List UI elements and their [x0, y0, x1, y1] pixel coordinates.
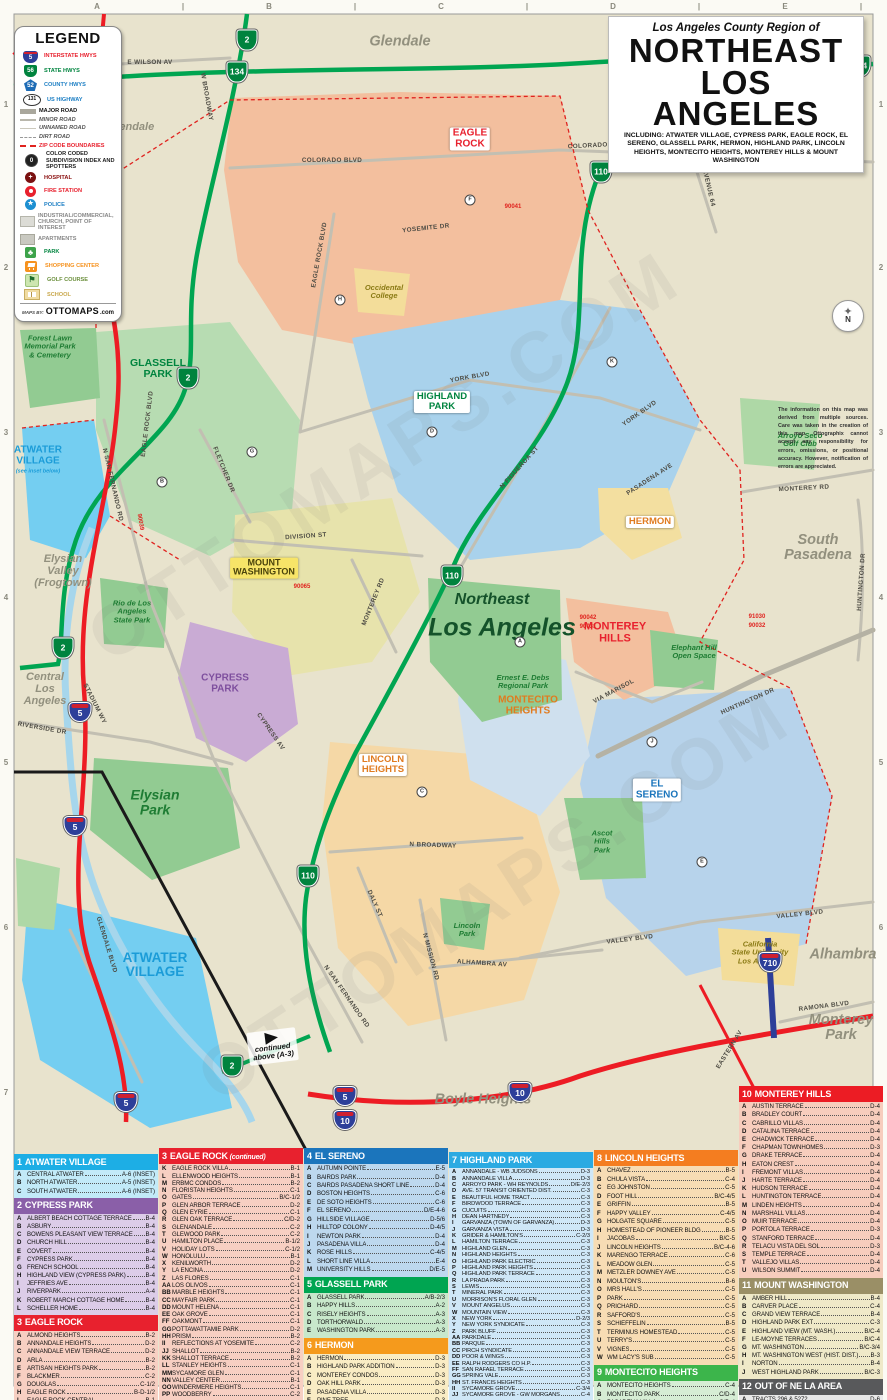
grid-row-label: 3: [4, 429, 8, 437]
legend-item-label: PARK: [44, 249, 59, 255]
campus-occidental: [354, 268, 410, 316]
legend-item-label: FIRE STATION: [44, 188, 82, 194]
legend-item-label: UNNAMED ROAD: [39, 125, 86, 131]
legend-item-label: SCHOOL: [47, 292, 71, 298]
grid-tick: |: [698, 1389, 700, 1397]
brand-name: OTTOMAPS: [46, 307, 99, 316]
grid-row-label: 5: [4, 759, 8, 767]
indus-icon: [20, 216, 35, 227]
spot-icon: 0: [25, 154, 38, 167]
legend-item: ZIP CODE BOUNDARIES: [20, 143, 116, 149]
legend-item: FIRE STATION: [20, 186, 116, 197]
map-poster: OTTOMAPS.COM OTTOMAPS.COM GlendaleGlenda…: [0, 0, 887, 1400]
grid-tick: |: [860, 1389, 862, 1397]
title-block: Los Angeles County Region of NORTHEAST L…: [608, 16, 864, 173]
legend-item: ♣PARK: [20, 247, 116, 258]
grid-row-label: 4: [4, 594, 8, 602]
grid-col-label: C: [438, 1389, 444, 1397]
grid-tick: |: [860, 3, 862, 11]
legend-item-label: US HIGHWAY: [47, 97, 83, 103]
i5-icon: 5: [23, 51, 38, 63]
grid-row-label: 4: [879, 594, 883, 602]
legend-item-label: INTERSTATE HWYS: [44, 53, 97, 59]
title-line2: LOS ANGELES: [613, 67, 859, 130]
legend-item: 52COUNTY HWYS: [20, 79, 116, 91]
legend-item: MAJOR ROAD: [20, 108, 116, 114]
shop-icon: [25, 261, 37, 272]
grid-row-label: 7: [879, 1089, 883, 1097]
title-including: INCLUDING: ATWATER VILLAGE, CYPRESS PARK…: [613, 132, 859, 165]
major-icon: [20, 109, 36, 114]
legend-item-label: COUNTY HWYS: [44, 82, 86, 88]
disclaimer-text: The information on this map was derived …: [778, 406, 868, 471]
c52-icon: 52: [24, 79, 37, 91]
school-icon: [24, 289, 40, 300]
map-canvas: [0, 0, 887, 1400]
grid-row-label: 1: [879, 101, 883, 109]
legend-item: SHOPPING CENTER: [20, 261, 116, 272]
compass-north-label: N: [845, 316, 851, 324]
legend-item: +HOSPITAL: [20, 172, 116, 183]
maps-by-label: MAPS BY:: [22, 311, 44, 316]
park-elephant-hill: [650, 630, 718, 690]
golf-left: [16, 858, 60, 930]
campus-csula: [718, 928, 800, 986]
grid-row-label: 6: [4, 924, 8, 932]
grid-tick: |: [182, 3, 184, 11]
grid-row-label: 2: [4, 264, 8, 272]
u131-icon: 131: [23, 94, 41, 106]
grid-row-label: 5: [879, 759, 883, 767]
grid-col-label: E: [782, 3, 787, 11]
legend-item: SCHOOL: [20, 289, 116, 300]
legend-item-label: GOLF COURSE: [47, 277, 88, 283]
s56-icon: 56: [24, 65, 37, 77]
legend-items: 5INTERSTATE HWYS56STATE HWYS52COUNTY HWY…: [20, 51, 116, 301]
legend-item-label: COLOR CODED SUBDIVISION INDEX AND SPOTTE…: [46, 151, 116, 170]
legend-item-label: HOSPITAL: [44, 175, 72, 181]
grid-row-label: 6: [879, 924, 883, 932]
grid-row-label: 3: [879, 429, 883, 437]
legend-item: DIRT ROAD: [20, 134, 116, 140]
zip-icon: [20, 145, 36, 147]
legend-item: MINOR ROAD: [20, 117, 116, 123]
grid-col-label: E: [782, 1389, 787, 1397]
legend-item: ⚑GOLF COURSE: [20, 274, 116, 287]
dirt-icon: [20, 137, 36, 138]
unnamed-icon: [20, 128, 36, 130]
golf-icon: ⚑: [25, 274, 39, 287]
legend-brand: MAPS BY: OTTOMAPS .com: [20, 303, 116, 316]
park-forest-lawn: [20, 328, 100, 408]
legend-item: 0COLOR CODED SUBDIVISION INDEX AND SPOTT…: [20, 151, 116, 170]
grid-tick: |: [354, 1389, 356, 1397]
legend-item-label: MINOR ROAD: [39, 117, 76, 123]
legend-item-label: STATE HWYS: [44, 68, 80, 74]
legend-item: INDUSTRIAL/COMMERCIAL, CHURCH, POINT OF …: [20, 213, 116, 232]
legend-item-label: ZIP CODE BOUNDARIES: [39, 143, 104, 149]
grid-col-label: C: [438, 3, 444, 11]
grid-tick: |: [354, 3, 356, 11]
grid-col-label: D: [610, 3, 616, 11]
grid-col-label: B: [266, 3, 272, 11]
grid-col-label: A: [94, 1389, 100, 1397]
grid-col-label: A: [94, 3, 100, 11]
grid-tick: |: [698, 3, 700, 11]
grid-row-label: 1: [4, 101, 8, 109]
title-line1: NORTHEAST: [613, 35, 859, 66]
fire-icon: [25, 186, 36, 197]
park-rio: [100, 578, 168, 648]
legend-item-label: MAJOR ROAD: [39, 108, 77, 114]
legend-item: 56STATE HWYS: [20, 65, 116, 77]
continued-note: continued above (A-3): [246, 1027, 298, 1065]
grid-tick: |: [526, 3, 528, 11]
continued-text: continued above (A-3): [252, 1042, 295, 1063]
legend-item-label: SHOPPING CENTER: [45, 263, 99, 269]
legend-item: 5INTERSTATE HWYS: [20, 51, 116, 63]
legend-item-label: DIRT ROAD: [39, 134, 70, 140]
grid-col-label: D: [610, 1389, 616, 1397]
grid-col-label: B: [266, 1389, 272, 1397]
hosp-icon: +: [25, 172, 36, 183]
grid-tick: |: [182, 1389, 184, 1397]
brand-suffix: .com: [100, 310, 114, 316]
legend-item: ★POLICE: [20, 199, 116, 210]
legend-item-label: POLICE: [44, 202, 65, 208]
legend-item: APARTMENTS: [20, 234, 116, 245]
legend-item: 131US HIGHWAY: [20, 94, 116, 106]
legend-item-label: APARTMENTS: [38, 236, 76, 242]
apart-icon: [20, 234, 35, 245]
legend-panel: LEGEND 5INTERSTATE HWYS56STATE HWYS52COU…: [14, 26, 122, 322]
legend-item-label: INDUSTRIAL/COMMERCIAL, CHURCH, POINT OF …: [38, 213, 116, 232]
grid-row-label: 7: [4, 1089, 8, 1097]
north-compass: ✦ N: [832, 300, 864, 332]
grid-tick: |: [526, 1389, 528, 1397]
park-icon: ♣: [25, 247, 36, 258]
minor-icon: [20, 119, 36, 122]
police-icon: ★: [25, 199, 36, 210]
grid-row-label: 2: [879, 264, 883, 272]
park-lincoln: [440, 898, 490, 950]
legend-item: UNNAMED ROAD: [20, 125, 116, 131]
legend-title: LEGEND: [20, 31, 116, 48]
